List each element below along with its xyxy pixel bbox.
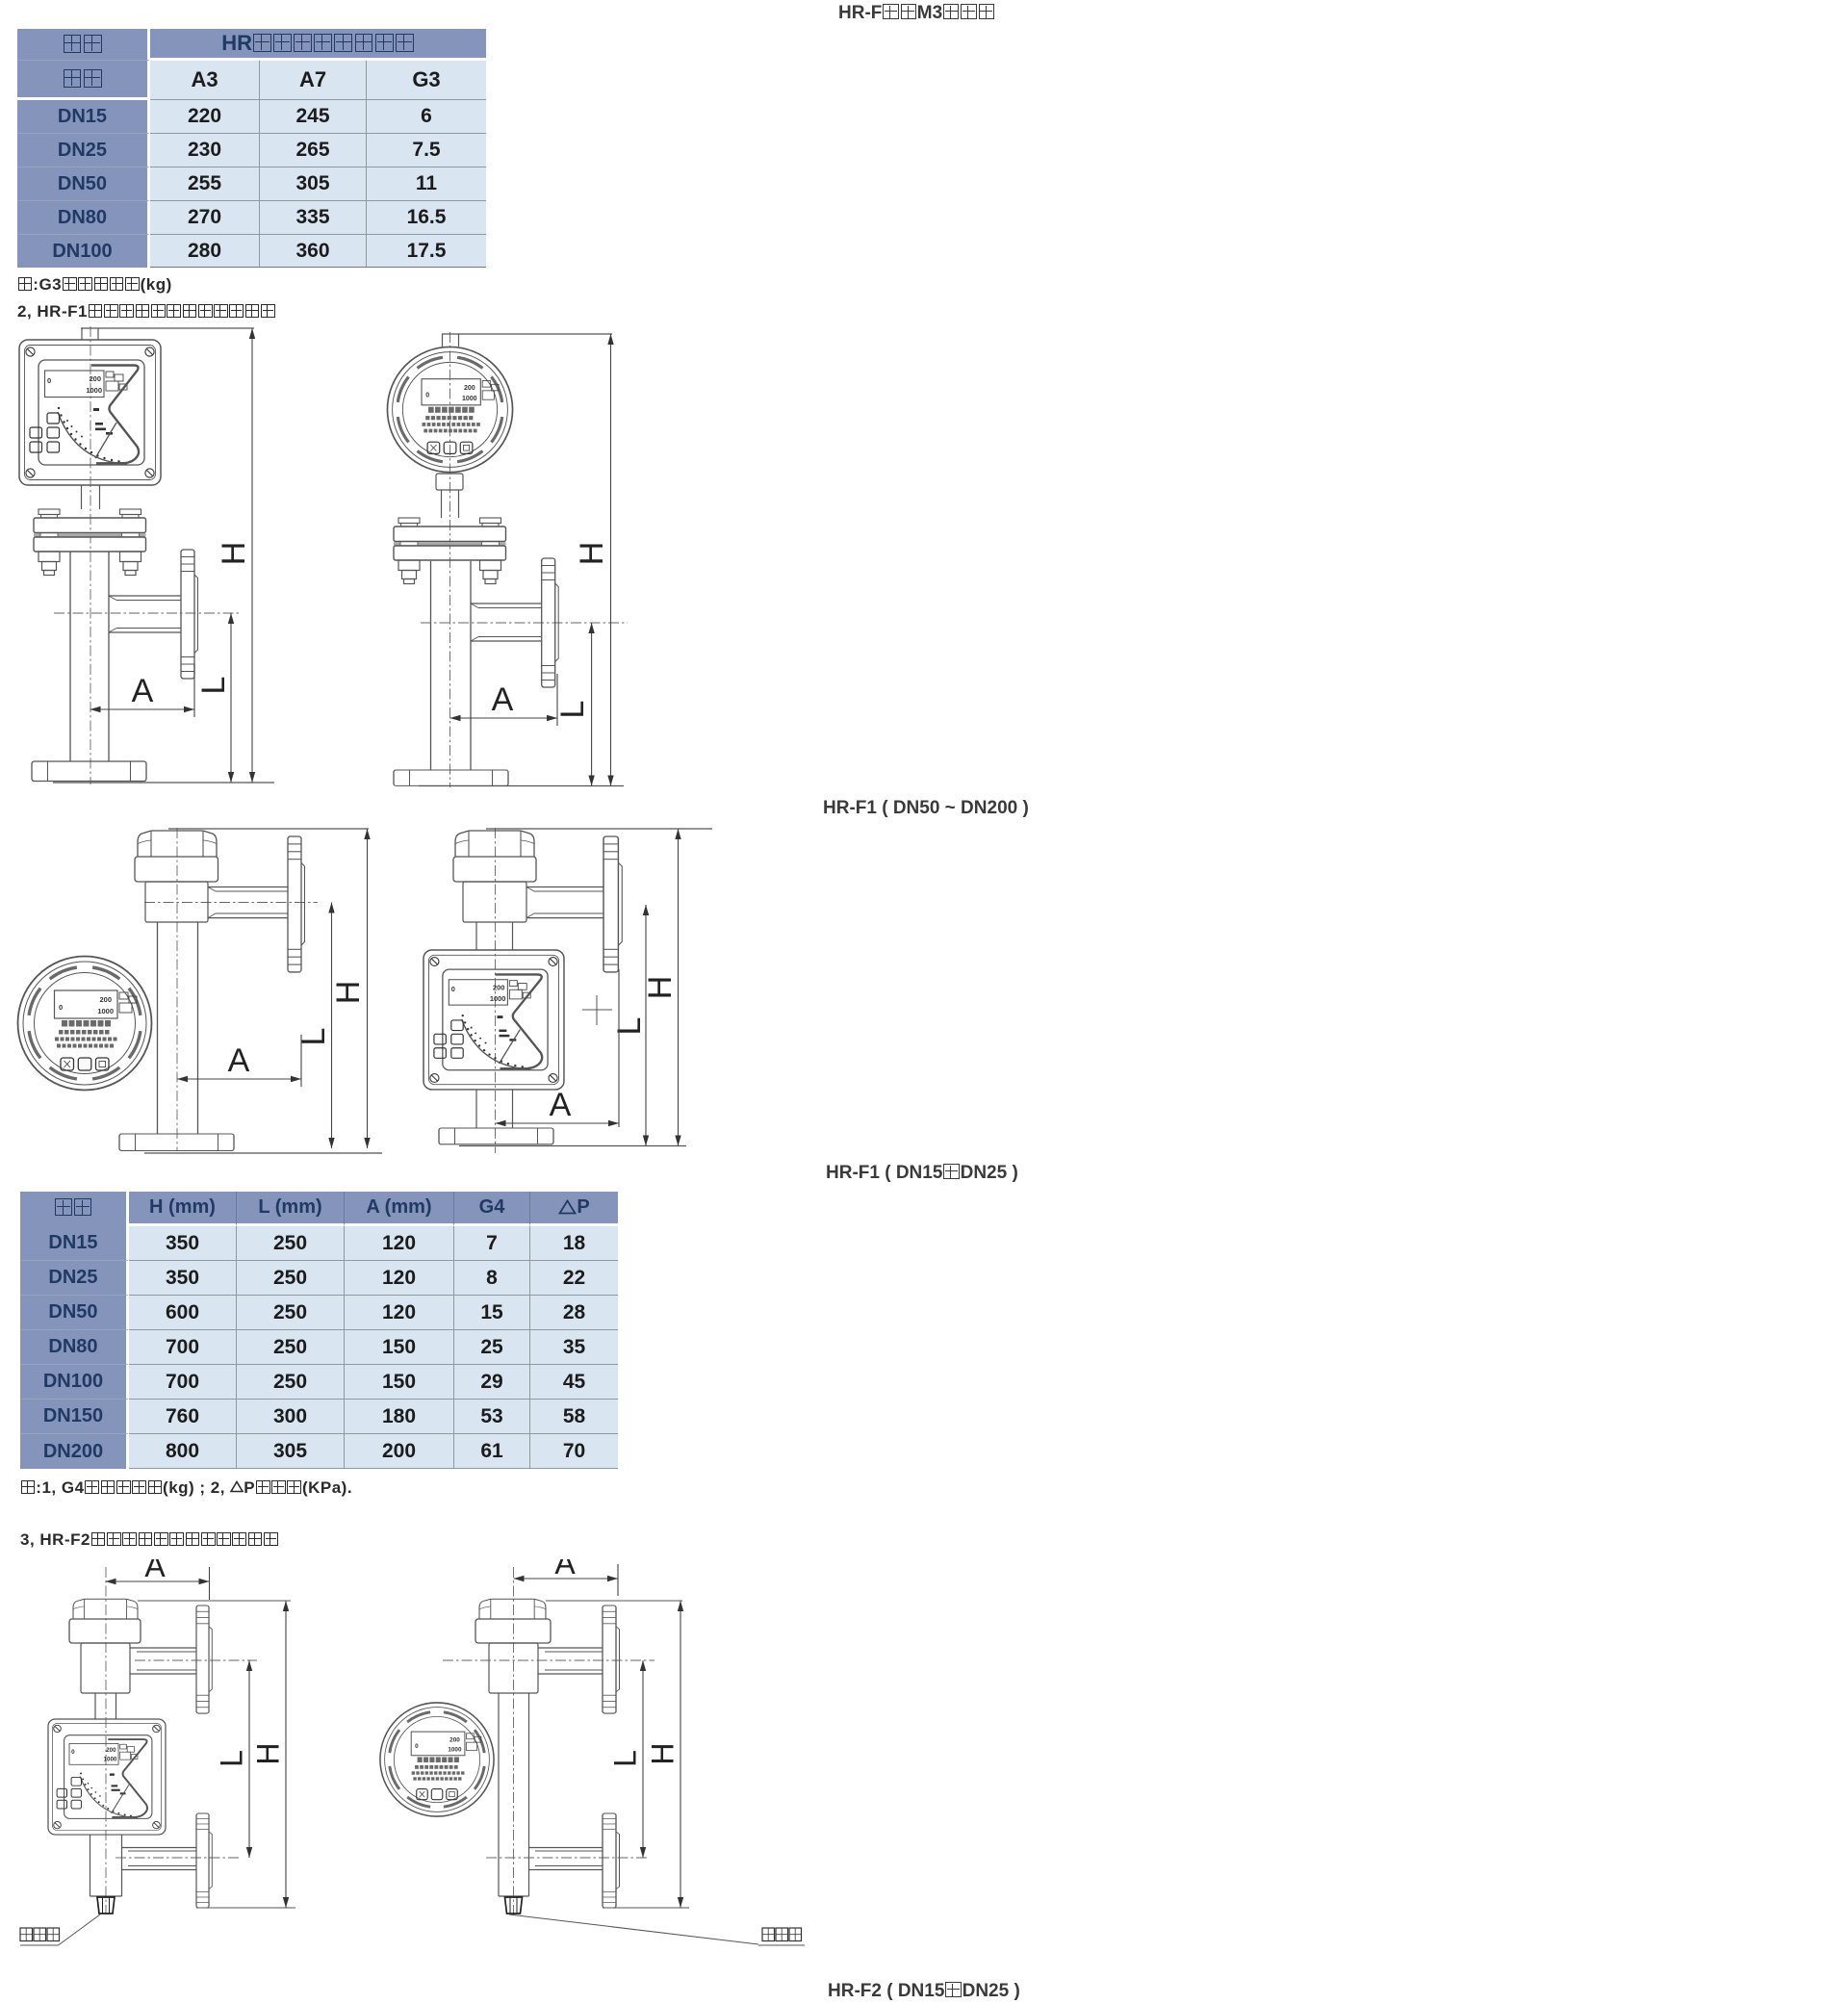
svg-text:A: A [554,1559,576,1580]
svg-text:A: A [132,673,154,709]
svg-text:L: L [214,1750,248,1767]
svg-text:A: A [492,681,514,718]
svg-text:L: L [611,1017,648,1036]
svg-text:H: H [574,542,610,566]
svg-text:L: L [554,701,591,719]
svg-text:A: A [228,1042,250,1079]
svg-text:L: L [195,677,232,695]
svg-text:H: H [642,976,679,1000]
svg-text:L: L [607,1750,642,1767]
svg-text:A: A [144,1559,166,1583]
svg-text:A: A [550,1087,572,1123]
svg-text:H: H [250,1742,285,1764]
svg-text:H: H [330,981,367,1005]
svg-text:H: H [216,542,252,566]
svg-text:H: H [645,1742,680,1764]
